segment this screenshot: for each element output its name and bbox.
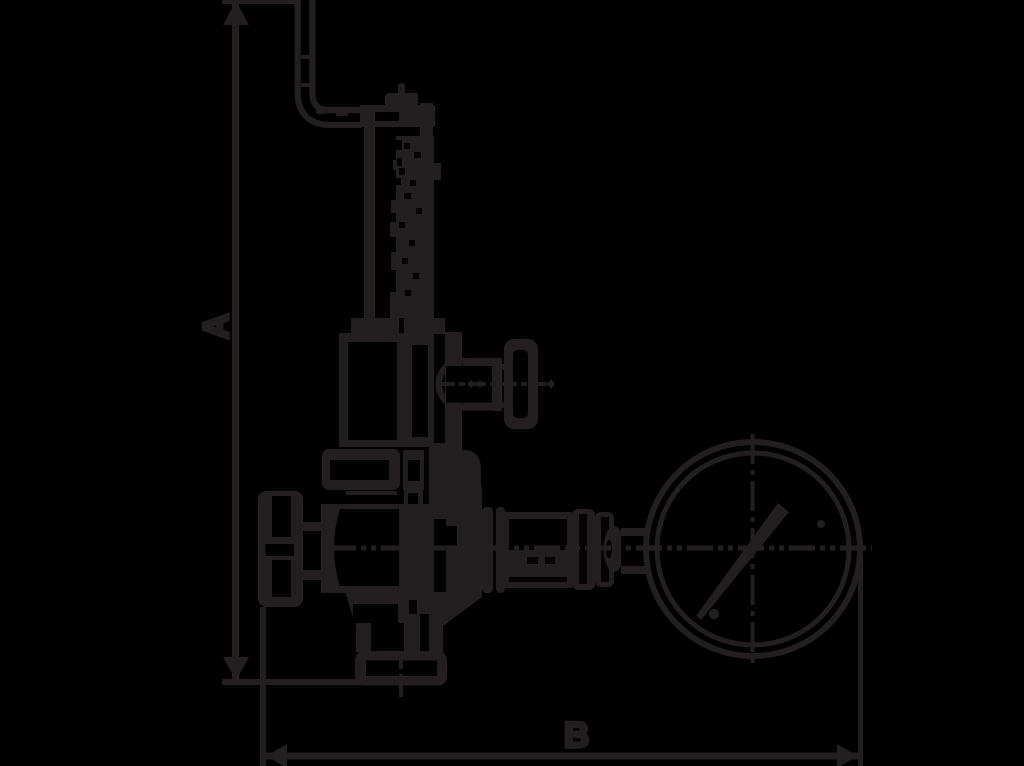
svg-text:A: A [197, 314, 236, 339]
svg-text:B: B [564, 716, 589, 755]
